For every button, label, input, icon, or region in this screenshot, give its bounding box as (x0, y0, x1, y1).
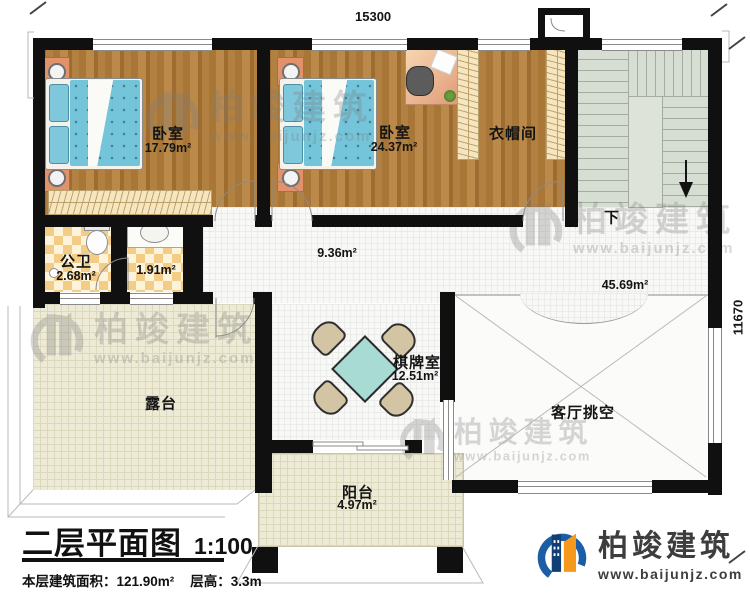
plan-scale: 1:100 (194, 533, 253, 559)
wall (257, 50, 270, 227)
window (93, 39, 212, 51)
window (518, 481, 652, 494)
wall (407, 38, 478, 50)
wall (708, 38, 722, 328)
wardrobe (48, 190, 212, 215)
plan-info: 本层建筑面积：121.90m²层高：3.3m (22, 570, 278, 590)
floor-area-label: 本层建筑面积：121.90m² (22, 574, 174, 589)
brand-url: www.baijunjz.com (598, 567, 743, 581)
wall (33, 215, 213, 227)
wall (173, 292, 213, 304)
lamp-icon (282, 169, 300, 187)
brand-name: 柏竣建筑 (598, 532, 743, 562)
dimension-top: 15300 (355, 9, 391, 24)
title-block: 二层平面图1:100 本层建筑面积：121.90m²层高：3.3m (22, 518, 302, 588)
plant-icon (444, 90, 456, 102)
floor-height-label: 层高：3.3m (190, 574, 261, 589)
wall (708, 443, 722, 495)
wall (33, 292, 60, 304)
pillar (437, 547, 463, 573)
bedroom2-area: 24.37m² (371, 140, 418, 154)
wall (212, 38, 312, 50)
stair-hall-area: 45.69m² (602, 278, 649, 292)
wall (183, 218, 203, 292)
pillow (49, 126, 69, 164)
terrace-label: 露台 (145, 393, 177, 414)
hallway-area: 9.36m² (317, 246, 357, 260)
pillow (283, 84, 303, 122)
window (478, 39, 530, 51)
floor-plan-page: 柏竣建筑 www.baijunjz.com 柏竣建筑 www.baijunjz.… (0, 0, 750, 598)
pillow (283, 126, 303, 164)
wardrobe (457, 47, 479, 160)
stairs-down-label: 下 (604, 207, 620, 228)
wall (405, 440, 422, 453)
stair-landing (628, 96, 663, 208)
wall (111, 218, 127, 292)
wall (255, 215, 272, 227)
bedroom1-area: 17.79m² (145, 141, 192, 155)
wall (565, 215, 578, 227)
window (60, 293, 100, 305)
window (443, 400, 454, 480)
window (130, 293, 173, 305)
wall (312, 215, 523, 227)
stair-flight-left (578, 48, 629, 207)
window (312, 39, 407, 51)
title-underline (22, 558, 224, 562)
wall (440, 292, 455, 402)
wall (100, 292, 130, 304)
plan-title: 二层平面图 (22, 526, 182, 561)
wall (255, 292, 272, 493)
brand-logo: 柏竣建筑 www.baijunjz.com (534, 527, 743, 585)
wall (565, 50, 578, 215)
stair-flight-top (628, 48, 708, 97)
wall (652, 480, 710, 493)
cloakroom-label: 衣帽间 (489, 123, 537, 144)
wall (253, 292, 272, 304)
washroom-area: 1.91m² (136, 263, 176, 277)
window (602, 39, 682, 51)
stair-direction-arrow (679, 182, 693, 198)
wall (452, 480, 518, 493)
balcony-area: 4.97m² (337, 498, 377, 512)
window (708, 328, 722, 443)
wall (33, 38, 45, 308)
lamp-icon (48, 169, 66, 187)
bathroom-area: 2.68m² (56, 269, 96, 283)
desk-chair (406, 66, 434, 96)
chimney (538, 8, 590, 44)
brand-logo-icon (534, 527, 590, 585)
chess-room-area: 12.51m² (392, 369, 439, 383)
wall (255, 440, 313, 453)
living-void-label: 客厅挑空 (551, 402, 615, 423)
pillow (49, 84, 69, 122)
dimension-right: 11670 (731, 286, 746, 350)
